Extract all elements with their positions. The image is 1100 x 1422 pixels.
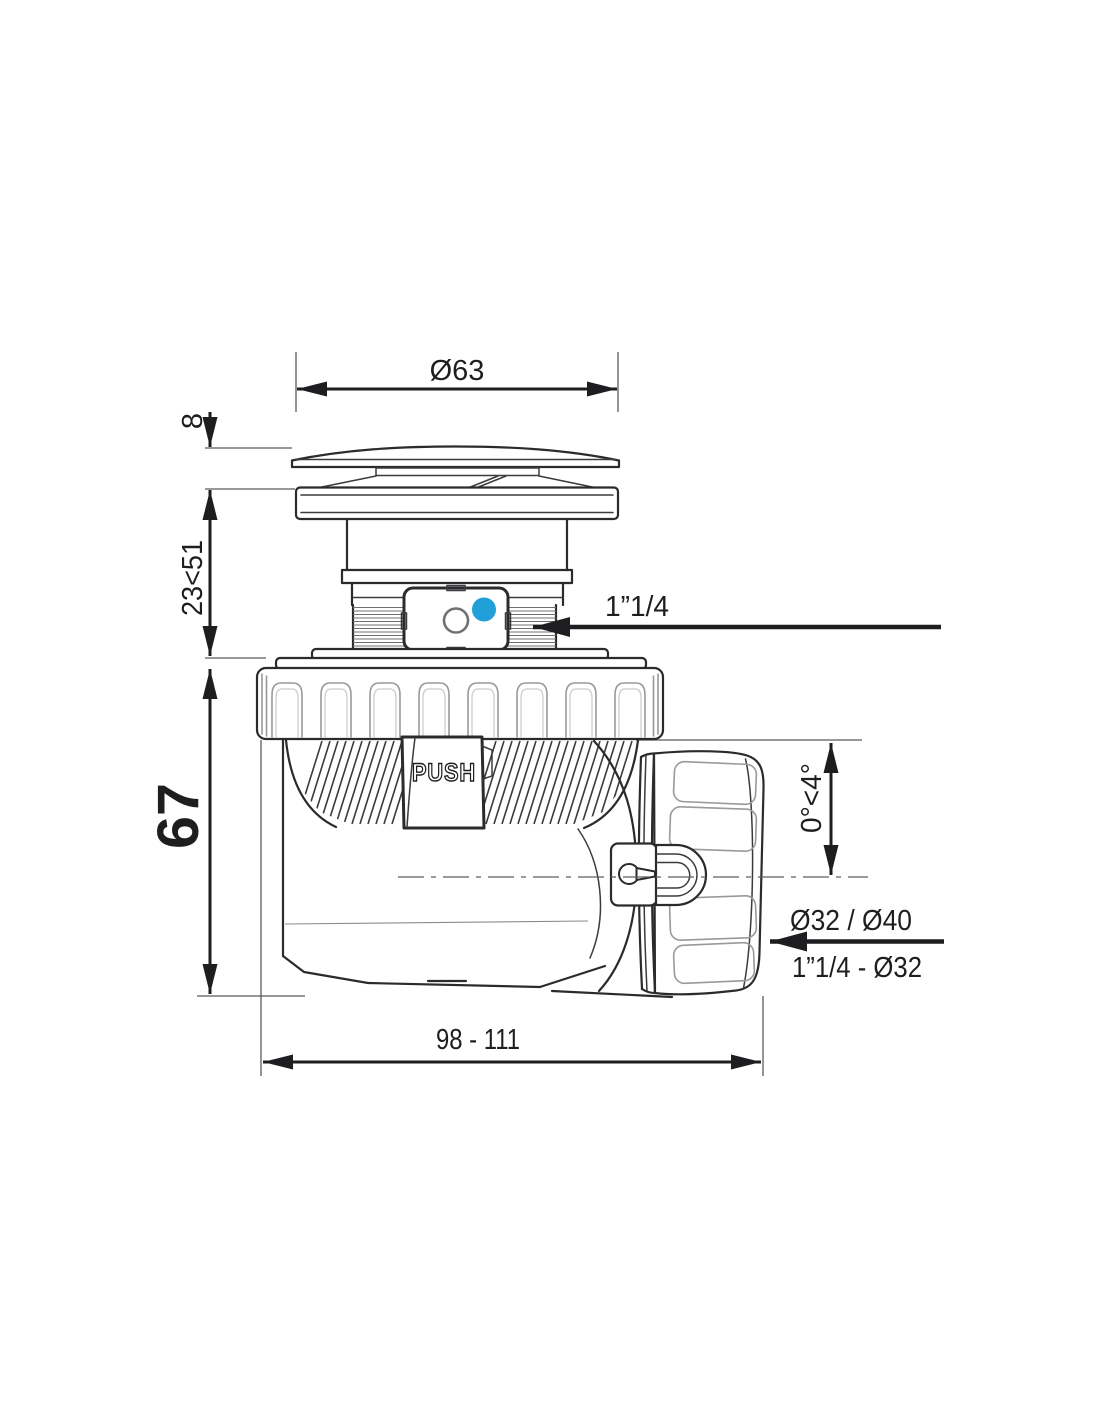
mounting-tab xyxy=(611,844,657,906)
upper-body xyxy=(347,519,567,570)
dim-length-range: 98 - 111 xyxy=(436,1024,520,1056)
washer-bands xyxy=(276,649,646,669)
technical-drawing-canvas: PUSH Ø63 8 23<51 67 1”1/4 0°<4° Ø32 / Ø4… xyxy=(0,0,1100,1422)
white-indicator-dot xyxy=(444,609,468,633)
cap-assembly xyxy=(292,447,619,606)
dim-outlet-diameters: Ø32 / Ø40 xyxy=(790,905,912,937)
dim-cap-height: 8 xyxy=(177,413,209,429)
inlet-thread xyxy=(353,586,556,653)
cap-dome xyxy=(292,447,619,468)
cap-stem xyxy=(376,468,539,476)
dim-inlet-thread: 1”1/4 xyxy=(605,591,669,623)
hook-clip xyxy=(656,845,706,905)
push-button: PUSH xyxy=(402,737,492,828)
cap-flange xyxy=(296,488,618,520)
blue-indicator-dot xyxy=(472,598,496,622)
waste-trap-drawing: PUSH Ø63 8 23<51 67 1”1/4 0°<4° Ø32 / Ø4… xyxy=(0,0,1100,1422)
dim-outlet-thread: 1”1/4 - Ø32 xyxy=(792,952,922,984)
dim-height-adjust: 23<51 xyxy=(177,540,209,616)
knurled-ring xyxy=(257,668,663,739)
dim-tilt-range: 0°<4° xyxy=(796,763,828,833)
dim-body-height: 67 xyxy=(146,783,211,849)
dim-cap-diameter: Ø63 xyxy=(430,355,485,387)
push-label: PUSH xyxy=(412,759,476,787)
